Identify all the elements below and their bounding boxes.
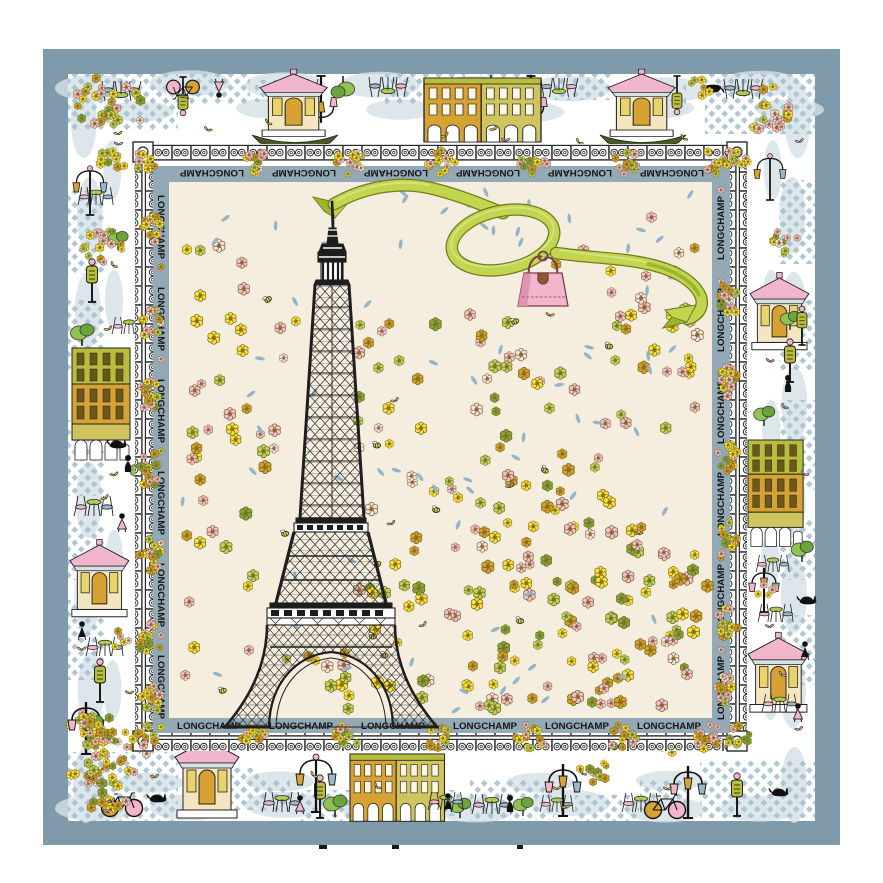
svg-text:LONGCHAMP: LONGCHAMP <box>179 167 244 178</box>
svg-text:LONGCHAMP: LONGCHAMP <box>547 167 612 178</box>
svg-text:LONGCHAMP: LONGCHAMP <box>637 721 702 732</box>
svg-text:LONGCHAMP: LONGCHAMP <box>455 167 520 178</box>
svg-text:LONGCHAMP: LONGCHAMP <box>271 167 336 178</box>
svg-text:LONGCHAMP: LONGCHAMP <box>453 721 518 732</box>
svg-text:LONGCHAMP: LONGCHAMP <box>155 379 166 444</box>
svg-text:LONGCHAMP: LONGCHAMP <box>545 721 610 732</box>
svg-text:LONGCHAMP: LONGCHAMP <box>363 167 428 178</box>
svg-text:LONGCHAMP: LONGCHAMP <box>639 167 704 178</box>
svg-text:LONGCHAMP: LONGCHAMP <box>716 195 727 260</box>
